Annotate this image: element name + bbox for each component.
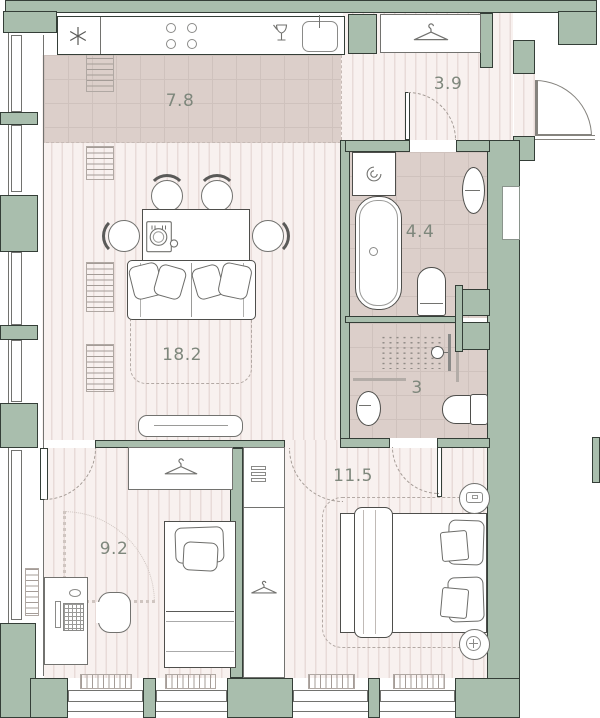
wall-top: [5, 0, 597, 13]
area-label-hallway: 3.9: [434, 74, 463, 94]
tv-console-line: [154, 425, 228, 426]
hob-icon: [166, 39, 176, 49]
shaft: [348, 14, 377, 54]
wall-shower-bottom-left: [340, 438, 390, 448]
wall-bottom-pier: [368, 678, 380, 718]
hanger-icon: [412, 22, 450, 44]
hob-icon: [187, 23, 197, 33]
entrance-door-arc: [535, 80, 592, 137]
radiator: [393, 674, 445, 689]
cushion: [440, 530, 470, 562]
kitchen-zone-boundary: [46, 142, 341, 143]
place-setting-icon: [146, 221, 178, 253]
window: [380, 690, 455, 702]
towel-rail: [353, 378, 406, 381]
bathroom-toilet: [417, 267, 446, 316]
radiator: [86, 262, 114, 312]
shaft: [462, 289, 490, 316]
wall-living-wet: [340, 140, 350, 448]
passage-floor: [285, 440, 343, 448]
hallway-zone-boundary: [341, 55, 342, 140]
keyboard-icon: [63, 603, 84, 631]
duvet-fold: [375, 510, 376, 634]
office-chair-gap: [96, 602, 101, 623]
duvet: [354, 507, 393, 638]
radiator: [25, 568, 39, 616]
shower-head-icon: [431, 346, 444, 359]
basin-line: [359, 405, 371, 406]
window: [156, 690, 227, 702]
wall-bottom-pier: [30, 678, 68, 718]
fridge-icon: [68, 26, 88, 46]
floor-plan: 7.8 3.9 4.4 3 18.2 9.2 11.5: [0, 0, 600, 718]
dining-chair: [108, 220, 140, 252]
dining-chair: [151, 180, 183, 212]
office-chair: [98, 592, 131, 633]
window: [11, 35, 22, 112]
wall-left-pier: [0, 403, 38, 448]
wall-bottom-block: [227, 678, 293, 718]
hob-icon: [166, 23, 176, 33]
wall-sliver-right: [592, 437, 600, 483]
cushion: [440, 587, 470, 619]
glass-icon: [271, 23, 292, 47]
duvet-fold: [363, 510, 364, 634]
wall-corner-top-right: [558, 11, 597, 45]
wall-bath-shower: [345, 316, 457, 323]
hanger-icon: [163, 457, 199, 478]
dining-chair: [252, 220, 284, 252]
wall-bathroom-top-right: [456, 140, 490, 152]
shower-basin: [356, 391, 381, 426]
shower-screen: [456, 352, 459, 382]
wall-left-tab: [0, 325, 38, 340]
area-label-shower-room: 3: [411, 378, 422, 398]
basin-line: [465, 190, 480, 191]
radiator: [80, 674, 132, 689]
monitor: [55, 601, 61, 628]
area-label-bathroom: 4.4: [406, 222, 435, 242]
entrance-door-leaf: [535, 135, 595, 140]
cabinet-divider: [244, 507, 284, 508]
shaft: [462, 322, 490, 350]
wall-shower-bottom-right: [437, 438, 490, 448]
drain-icon: [369, 247, 378, 256]
left-wall-outer-line: [8, 33, 9, 678]
blanket-line: [166, 621, 234, 622]
shower-rail: [448, 334, 451, 371]
dining-chair: [201, 180, 233, 212]
mouse-icon: [69, 589, 81, 597]
blanket-line: [166, 651, 234, 652]
radiator: [86, 344, 114, 392]
wall-bottom-pier: [143, 678, 156, 718]
window: [11, 252, 22, 325]
wall-left-tab: [0, 112, 38, 125]
area-label-living: 18.2: [162, 345, 202, 365]
radiator: [86, 146, 114, 180]
shelves-icon: [251, 466, 266, 470]
window: [293, 690, 368, 702]
radiator: [165, 674, 216, 689]
shelves-icon: [251, 478, 266, 482]
hanger-icon: [250, 580, 278, 596]
toilet-line: [420, 303, 443, 304]
window: [11, 340, 22, 402]
tap-icon: [319, 15, 320, 28]
window: [11, 450, 22, 620]
pillow: [182, 541, 218, 572]
fridge-divider: [100, 17, 101, 54]
area-label-bedroom-small: 9.2: [100, 539, 129, 559]
blanket-line: [166, 611, 234, 612]
remote-button: [472, 495, 478, 499]
shelves-icon: [251, 472, 266, 476]
bathtub-inner: [359, 200, 398, 306]
wall-left-pier: [0, 195, 38, 252]
window: [68, 690, 143, 702]
wall-niche: [502, 186, 520, 240]
area-label-kitchen: 7.8: [166, 91, 195, 111]
shower-toilet-tank: [470, 394, 488, 425]
wall-above-entrance: [513, 40, 535, 74]
washer-drum-icon: [363, 163, 385, 185]
wall-bathroom-top-left: [345, 140, 410, 152]
area-label-bedroom-master: 11.5: [333, 466, 373, 486]
window: [11, 125, 22, 192]
wall-entrance-jamb: [480, 13, 493, 68]
shower-toilet-bowl: [442, 395, 472, 424]
wall-corner-bottom-right: [455, 678, 520, 718]
wall-corner-top-left: [3, 11, 57, 33]
radiator: [308, 674, 355, 689]
entrance-threshold: [514, 74, 535, 136]
hob-icon: [187, 39, 197, 49]
plus-line: [469, 643, 478, 644]
